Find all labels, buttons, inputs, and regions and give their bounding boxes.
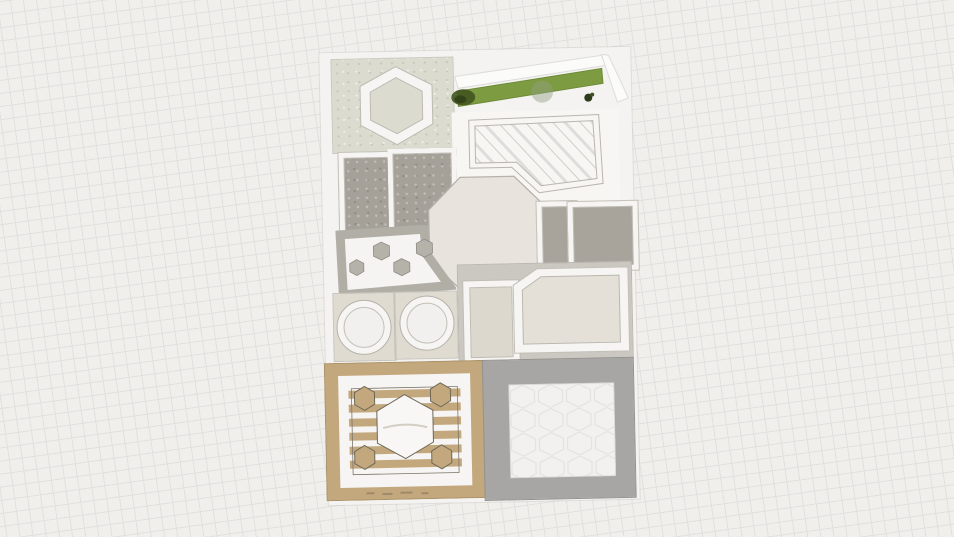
room-wood-stripes[interactable]	[324, 360, 487, 501]
room-angled[interactable]	[510, 265, 633, 356]
patio-garden[interactable]	[450, 52, 631, 116]
design-viewport[interactable]	[0, 0, 954, 537]
round-rugs	[333, 291, 457, 361]
small-plant-icon[interactable]	[584, 93, 594, 102]
hexagon-rug[interactable]	[508, 382, 616, 478]
room-hex-tile[interactable]	[331, 58, 454, 154]
room-gray-rug[interactable]	[483, 358, 636, 500]
room-hex-dots[interactable]	[335, 225, 456, 299]
wall-right	[601, 54, 628, 103]
room-closet-square[interactable]	[567, 201, 638, 271]
round-rug-left[interactable]	[336, 300, 391, 355]
hexagon-inlay	[331, 58, 454, 154]
round-rug-right[interactable]	[399, 296, 454, 351]
floor-plan[interactable]	[319, 47, 639, 505]
